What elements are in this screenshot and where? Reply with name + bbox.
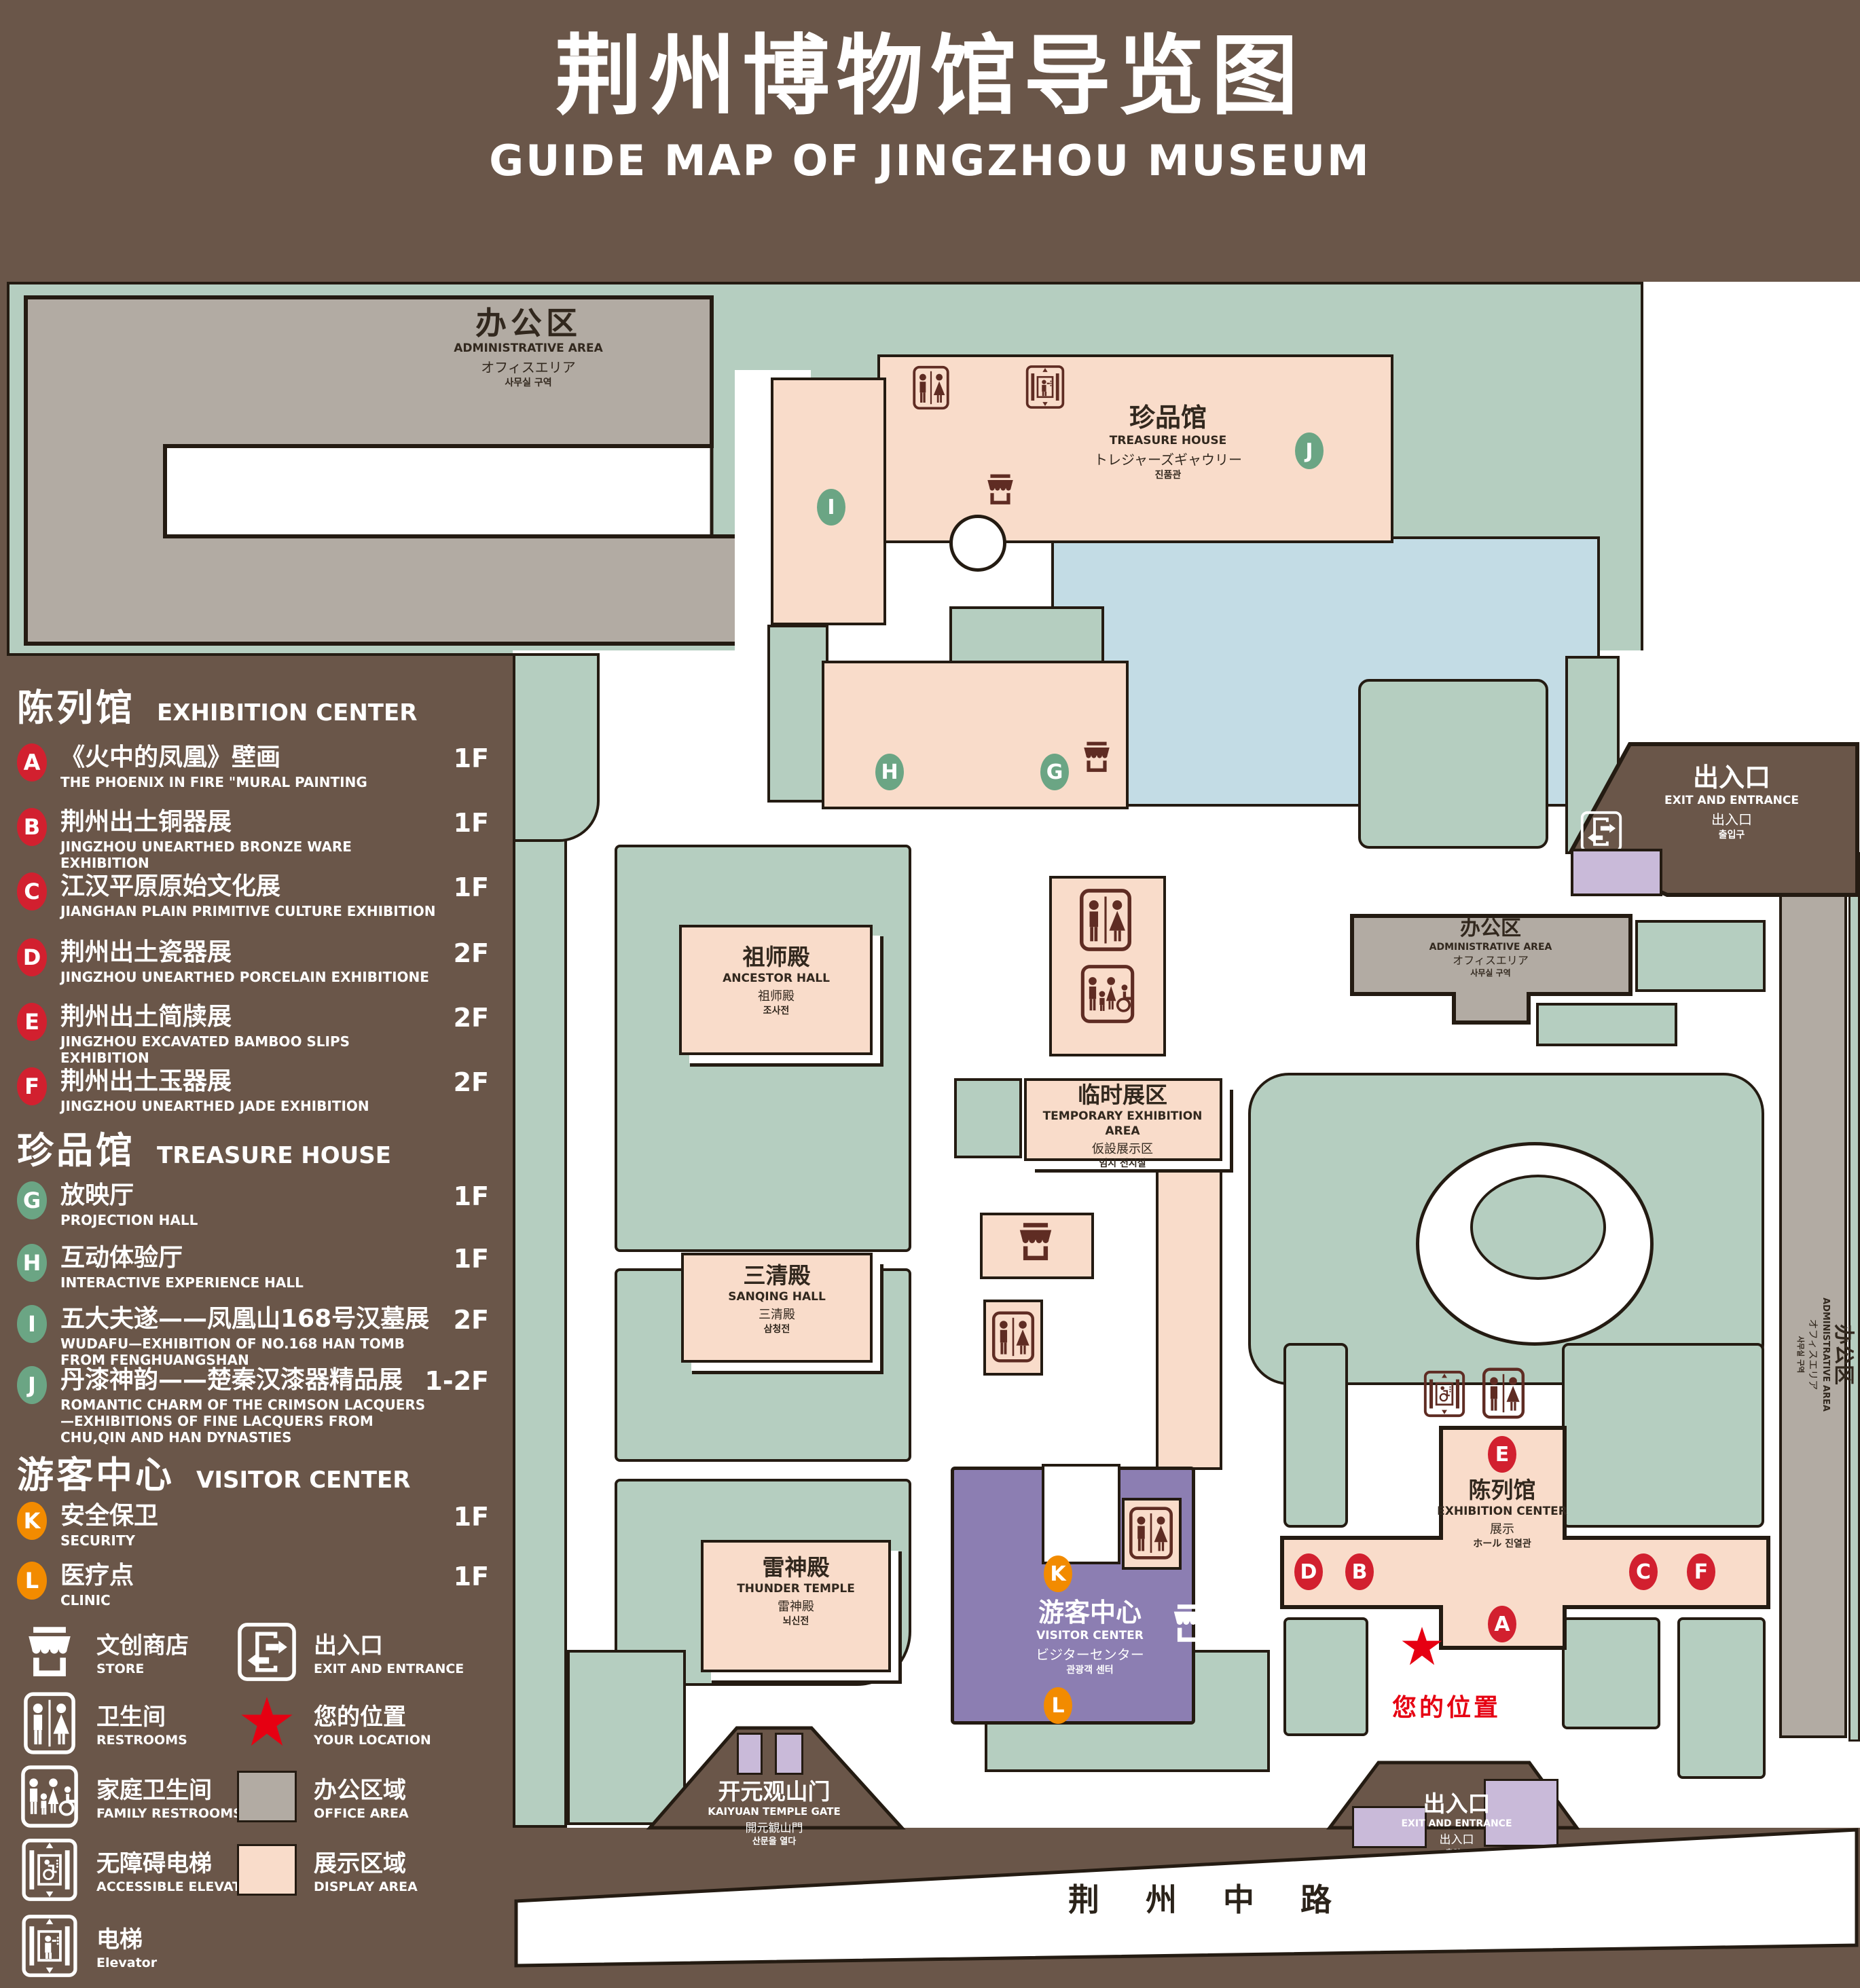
visitor-center-label: 游客中心 VISITOR CENTER ビジターセンター 관광객 센터	[971, 1600, 1209, 1676]
map-marker-g: G	[1040, 754, 1069, 790]
restrooms-icon	[1078, 888, 1133, 952]
map-marker-a: A	[1488, 1606, 1516, 1642]
legend-item-d: D 荆州出土瓷器展JINGZHOU UNEARTHED PORCELAIN EX…	[17, 938, 489, 985]
office-area-swatch	[234, 1764, 299, 1828]
legend-item-g: G 放映厅PROJECTION HALL 1F	[17, 1181, 489, 1228]
green-temp-notch	[954, 1078, 1022, 1158]
treasure-courtyard-bump	[949, 515, 1006, 572]
exit-entrance-label: 出入口 EXIT AND ENTRANCE 出入口 출입구	[1630, 765, 1834, 841]
green-south-of-admin	[1536, 1003, 1677, 1046]
legend-item-k: K 安全保卫SECURITY 1F	[17, 1502, 489, 1549]
green-northeast-block	[1358, 679, 1548, 849]
map-marker-h: H	[875, 754, 904, 790]
family-restrooms-icon	[17, 1764, 81, 1828]
page-title: 荆州博物馆导览图	[0, 5, 1860, 131]
restrooms-icon	[1129, 1505, 1173, 1562]
small-building	[1571, 849, 1662, 896]
legend-section-treasure-house: 珍品馆TREASURE HOUSE	[17, 1120, 391, 1174]
sanqing-hall-label: 三清殿 SANQING HALL 三清殿 삼청전	[682, 1264, 871, 1336]
restrooms-icon	[911, 365, 951, 410]
map-marker-k: K	[1044, 1556, 1072, 1592]
your-location-star-icon	[1400, 1627, 1444, 1668]
legend-section-visitor-center: 游客中心VISITOR CENTER	[17, 1445, 410, 1498]
store-icon	[982, 473, 1019, 507]
store-icon	[1078, 740, 1115, 774]
map-marker-b: B	[1345, 1553, 1374, 1590]
legend-symbol-display-area: 展示区域DISPLAY AREA	[234, 1837, 418, 1902]
legend-symbol-restrooms: 卫生间RESTROOMS	[17, 1691, 187, 1755]
admin-area-label: 办公区 ADMINISTRATIVE AREA オフィスエリア 사무실 구역	[352, 307, 705, 390]
legend-section-exhibition-center: 陈列馆EXHIBITION CENTER	[17, 678, 417, 731]
store-icon	[17, 1619, 81, 1684]
legend-item-l: L 医疗点CLINIC 1F	[17, 1562, 489, 1608]
legend-symbol-store: 文创商店STORE	[17, 1619, 189, 1684]
green-strip-west-of-lake	[767, 625, 828, 803]
legend-item-h: H 互动体验厅INTERACTIVE EXPERIENCE HALL 1F	[17, 1244, 489, 1291]
map-marker-c: C	[1629, 1553, 1658, 1590]
legend-item-c: C 江汉平原原始文化展JIANGHAN PLAIN PRIMITIVE CULT…	[17, 872, 489, 919]
pond-island	[1470, 1175, 1606, 1280]
accessible-elevator-icon	[17, 1837, 81, 1902]
display-area-swatch	[234, 1837, 299, 1902]
legend-symbol-exit: 出入口EXIT AND ENTRANCE	[234, 1619, 464, 1684]
legend-symbol-family-restrooms: 家庭卫生间FAMILY RESTROOMS	[17, 1764, 242, 1828]
visitor-center-notch	[1042, 1464, 1120, 1564]
restrooms-icon	[17, 1691, 81, 1755]
green-west-top-block	[513, 653, 600, 842]
elevator-icon	[17, 1913, 81, 1978]
legend-symbol-office-area: 办公区域OFFICE AREA	[234, 1764, 409, 1828]
map-marker-l: L	[1044, 1687, 1072, 1724]
map-marker-f: F	[1687, 1553, 1715, 1590]
legend-symbol-accessible-elevator: 无障碍电梯ACCESSIBLE ELEVATOR	[17, 1837, 262, 1902]
exit-icon	[234, 1619, 299, 1684]
admin-area-label: 办公区 ADMINISTRATIVE AREA オフィスエリア 사무실 구역	[1772, 1226, 1854, 1484]
treasure-house-label: 珍品馆 TREASURE HOUSE トレジャーズギャウリー 진품관	[1005, 405, 1331, 481]
page-subtitle: GUIDE MAP OF JINGZHOU MUSEUM	[0, 136, 1860, 185]
thunder-temple-label: 雷神殿 THUNDER TEMPLE 雷神殿 뇌신전	[704, 1556, 888, 1627]
green-east-of-admin	[1635, 920, 1766, 992]
treasure-house-lower	[822, 661, 1129, 809]
family-restrooms-icon	[1078, 964, 1137, 1024]
restrooms-icon	[1482, 1366, 1525, 1420]
your-location-text: 您的位置	[1365, 1688, 1528, 1723]
exit-icon	[1580, 811, 1623, 853]
legend-symbol-your-location: 您的位置YOUR LOCATION	[234, 1691, 431, 1755]
legend-item-i: I 五大夫遂——凤凰山168号汉墓展WUDAFU—EXHIBITION OF N…	[17, 1305, 489, 1368]
store-icon	[1013, 1221, 1058, 1263]
your-location-star-icon	[234, 1691, 299, 1755]
restrooms-icon	[991, 1309, 1035, 1365]
map-marker-d: D	[1294, 1553, 1323, 1590]
lakeside-green	[949, 606, 1104, 666]
temporary-exhibition-label: 临时展区 TEMPORARY EXHIBITION AREA 仮設展示区 임시 …	[1025, 1084, 1220, 1170]
legend-item-a: A 《火中的凤凰》壁画THE PHOENIX IN FIRE "MURAL PA…	[17, 743, 489, 790]
gate-building	[775, 1733, 803, 1775]
map-marker-e: E	[1488, 1436, 1516, 1473]
elevator-icon	[1025, 364, 1065, 410]
legend-item-j: J 丹漆神韵——楚秦汉漆器精品展ROMANTIC CHARM OF THE CR…	[17, 1366, 489, 1446]
road-name: 荆 州 中 路	[1019, 1875, 1399, 1920]
legend-item-b: B 荆州出土铜器展JINGZHOU UNEARTHED BRONZE WARE …	[17, 808, 489, 871]
accessible-elevator-icon	[1423, 1367, 1465, 1420]
legend-symbol-elevator: 电梯Elevator	[17, 1913, 157, 1978]
gate-building	[737, 1733, 763, 1775]
map-marker-j: J	[1295, 432, 1324, 469]
guide-map-poster: 荆州博物馆导览图 GUIDE MAP OF JINGZHOU MUSEUM 办公…	[0, 0, 1860, 1988]
admin-area-label: 办公区 ADMINISTRATIVE AREA オフィスエリア 사무실 구역	[1353, 918, 1628, 979]
ancestor-hall-label: 祖师殿 ANCESTOR HALL 祖师殿 조사전	[680, 946, 872, 1017]
legend-item-f: F 荆州出土玉器展JINGZHOU UNEARTHED JADE EXHIBIT…	[17, 1067, 489, 1114]
legend-item-e: E 荆州出土简牍展JINGZHOU EXCAVATED BAMBOO SLIPS…	[17, 1003, 489, 1066]
map-marker-i: I	[817, 489, 845, 526]
exhibition-center-label: 陈列馆 EXHIBITION CENTER 展示 ホール 진열관	[1385, 1479, 1619, 1550]
